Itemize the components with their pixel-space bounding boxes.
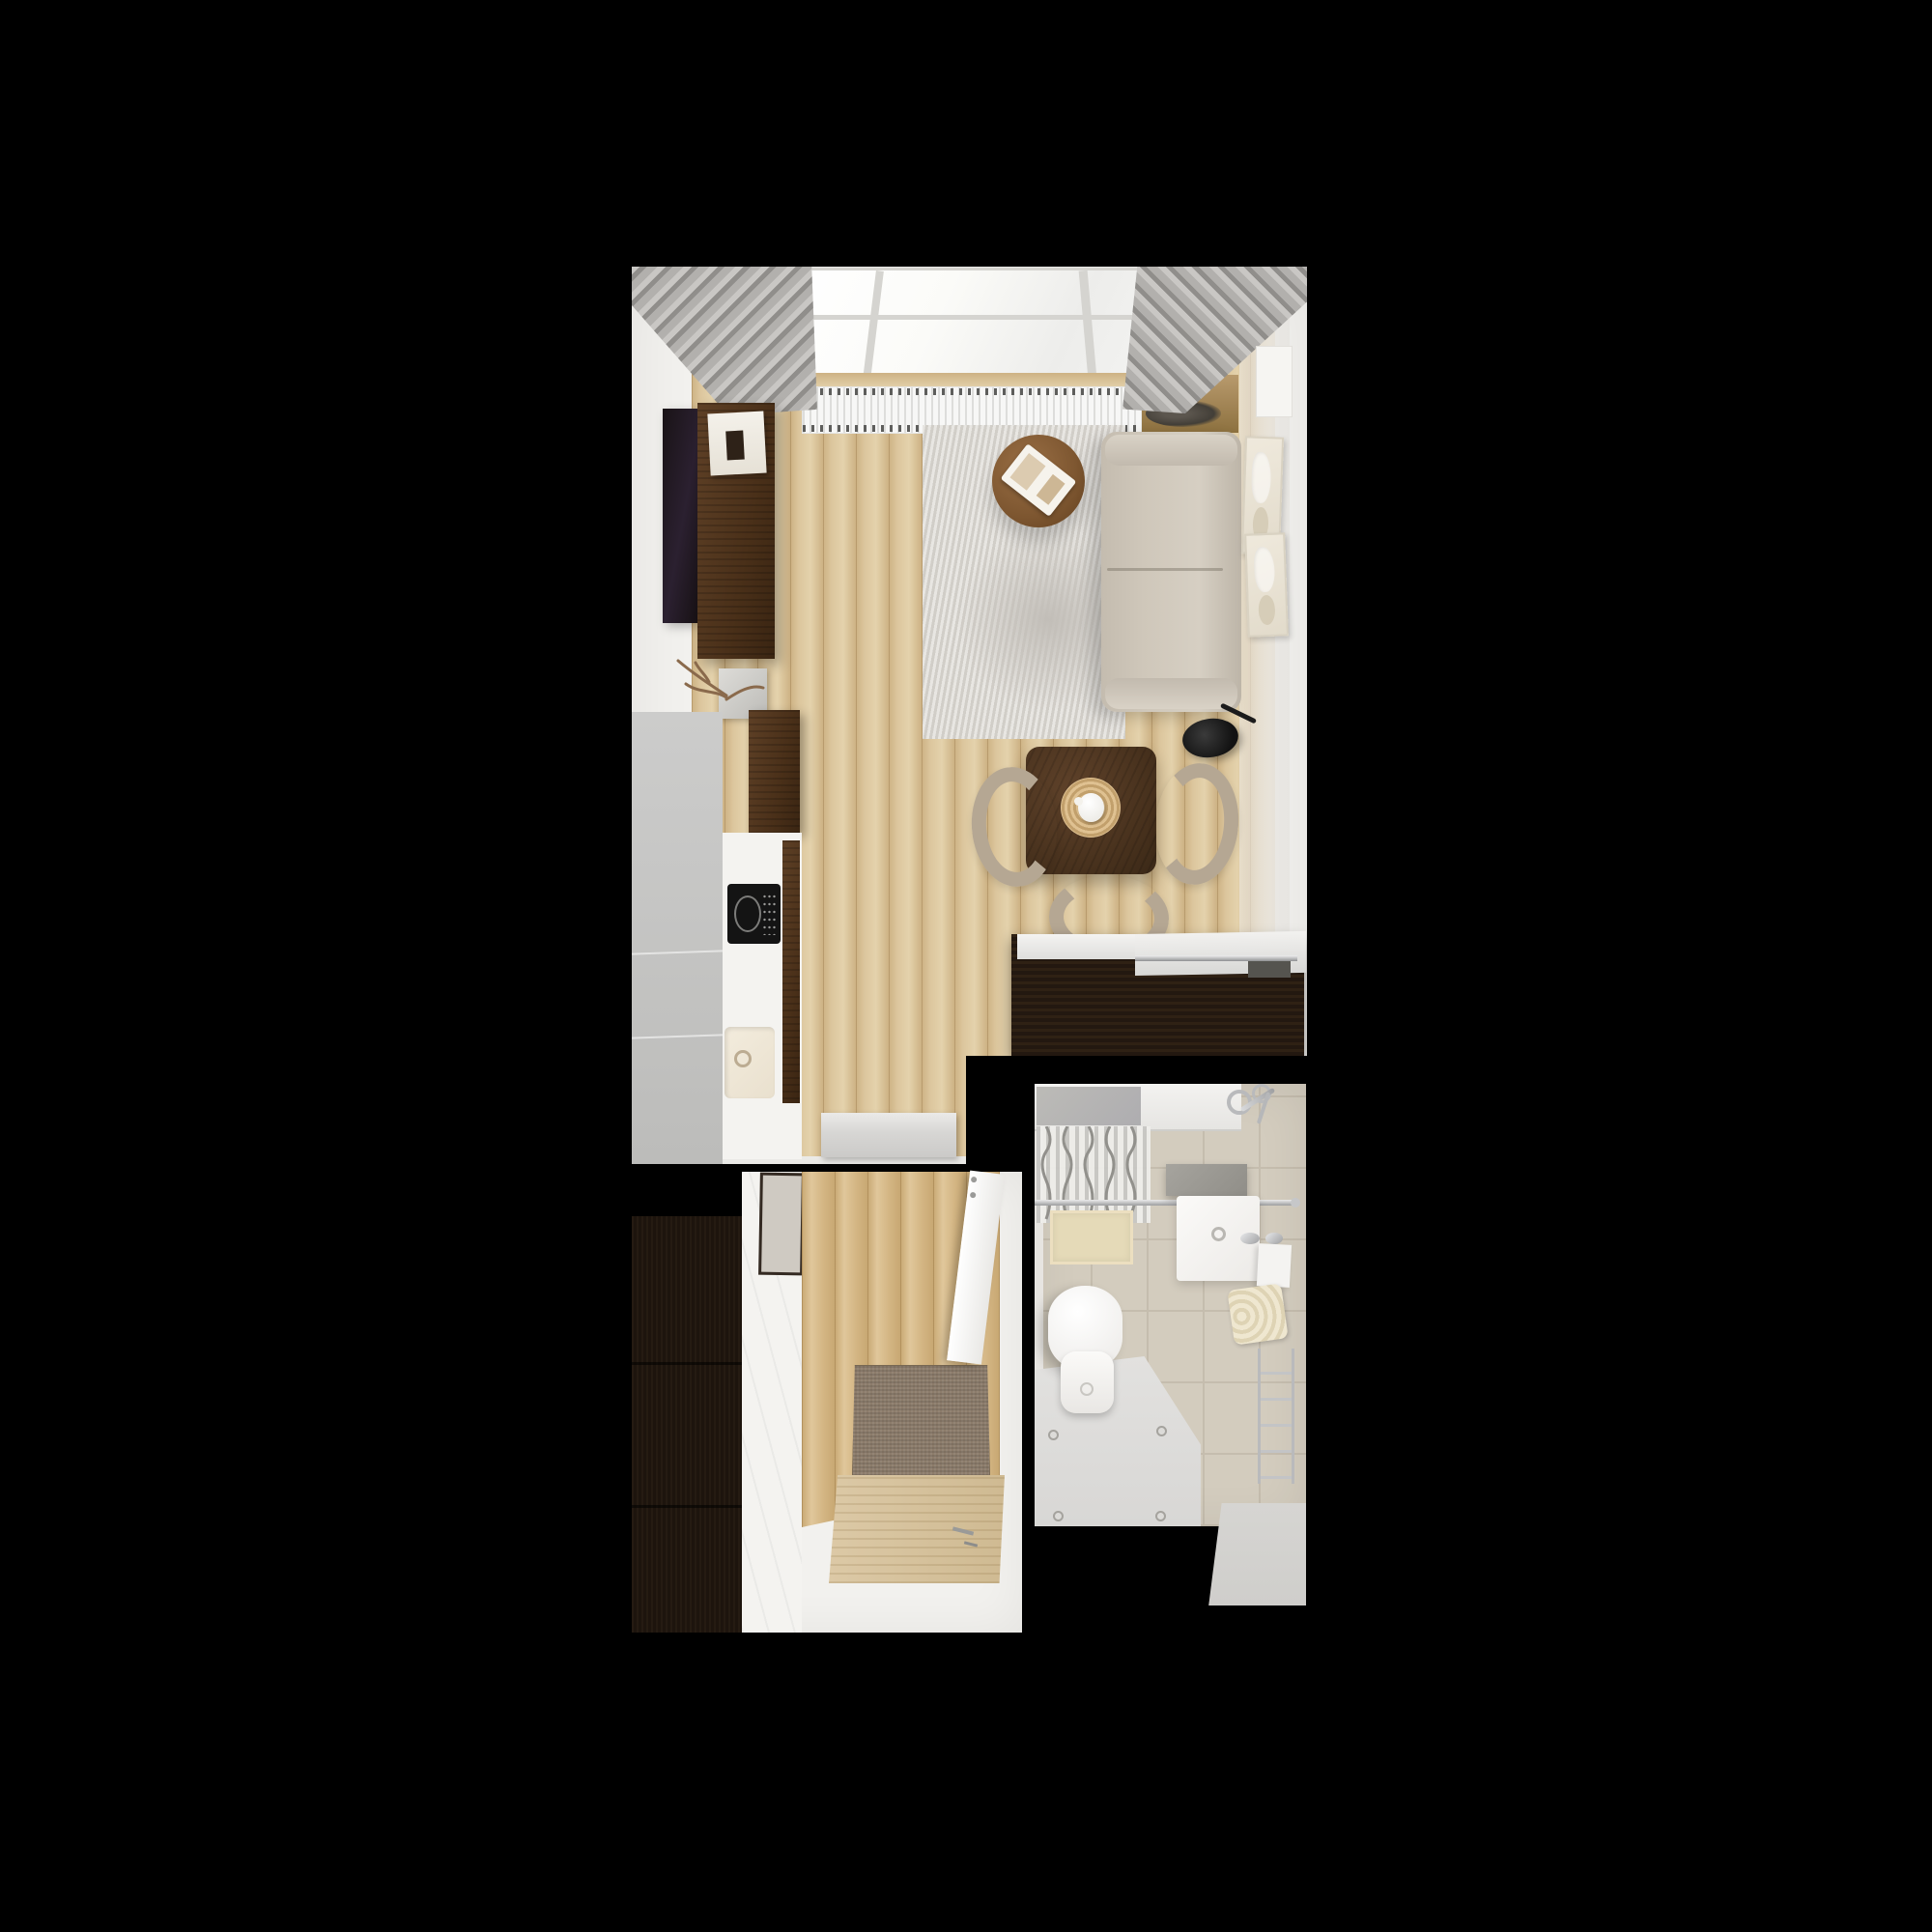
tv <box>663 409 697 623</box>
kitchen-sink <box>724 1027 775 1098</box>
teapot <box>1078 793 1104 822</box>
sideboard-top-panel-left <box>1017 934 1135 959</box>
basin-faucet <box>1240 1233 1260 1244</box>
floor-screw <box>1155 1511 1166 1521</box>
coffee-table <box>992 435 1085 527</box>
kitchen-wood-cabinet <box>749 710 800 833</box>
sofa <box>1101 432 1241 712</box>
basin-side-panel <box>1257 1243 1292 1288</box>
sofa-armrest-bottom <box>1105 678 1237 709</box>
shower-curtain <box>1037 1126 1151 1223</box>
threshold-step <box>821 1113 956 1157</box>
floor-screw <box>1053 1511 1064 1521</box>
doormat <box>852 1365 990 1477</box>
placemat <box>1061 778 1121 838</box>
toilet-bowl <box>1061 1351 1114 1413</box>
folded-towels <box>1227 1283 1288 1345</box>
kitchen-tall-unit <box>632 712 723 1164</box>
coffee-table-tray <box>1001 443 1077 517</box>
console-vase <box>725 431 745 461</box>
bathtub <box>1035 1084 1241 1131</box>
counter-wood-edge <box>782 840 800 1103</box>
hallway-void-notch <box>632 1172 742 1216</box>
floor-screw <box>1156 1426 1167 1436</box>
induction-hob <box>727 884 781 944</box>
wardrobe <box>632 1216 744 1633</box>
towel-ladder <box>1258 1349 1294 1484</box>
basin-faucet-handle <box>1265 1233 1283 1244</box>
door-handle <box>952 1526 974 1535</box>
hall-mirror <box>758 1173 805 1276</box>
sideboard-item <box>1248 961 1291 978</box>
entrance-door <box>829 1475 1005 1583</box>
bath-shelf <box>1166 1164 1247 1196</box>
wall-art-faint <box>1256 346 1293 417</box>
door-handle <box>964 1541 978 1547</box>
wall-art-2 <box>1244 532 1289 637</box>
sofa-armrest-top <box>1105 435 1237 466</box>
floor-screw <box>1048 1430 1059 1440</box>
bath-mat <box>1050 1210 1133 1264</box>
floor-plan-stage <box>0 0 1932 1932</box>
sideboard <box>1011 934 1304 1056</box>
